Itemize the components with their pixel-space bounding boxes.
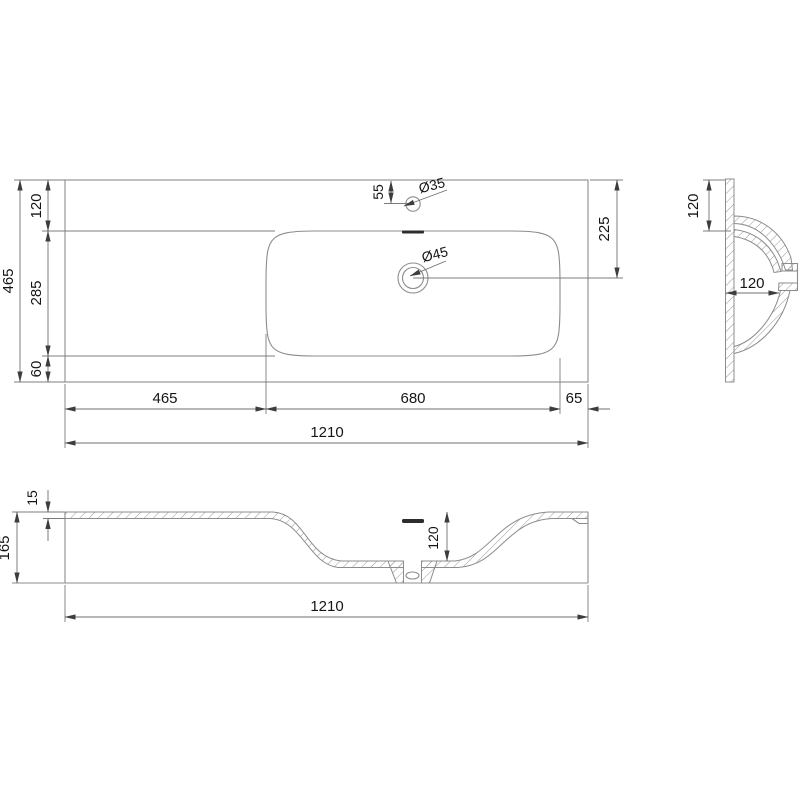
dim-basin-width: 680 [400, 390, 425, 407]
dim-basin-depth: 285 [28, 280, 45, 305]
overflow-slot-top-view [402, 231, 424, 234]
dim-front-overall-height: 165 [0, 535, 13, 560]
dim-side-back-margin: 120 [685, 193, 702, 218]
dim-overall-width-front: 1210 [310, 598, 343, 615]
top-view-dimension-lines [20, 180, 617, 443]
side-bowl-lower-wall [734, 291, 790, 354]
label-drain-hole-dia: Ø45 [420, 243, 450, 265]
side-overflow-tab-bottom [779, 283, 798, 291]
dim-side-bowl-inner-width: 120 [739, 275, 764, 292]
dim-front-margin: 60 [28, 361, 45, 378]
top-view: 465 120 285 60 55 225 Ø35 Ø45 465 680 65… [0, 174, 623, 448]
dim-right-margin: 65 [566, 390, 583, 407]
drain-boss-left [388, 561, 404, 583]
dim-drain-from-back: 225 [596, 216, 613, 241]
drawing-canvas: 465 120 285 60 55 225 Ø35 Ø45 465 680 65… [0, 0, 800, 800]
overflow-slot-front-view [402, 519, 424, 523]
countertop-outline [65, 180, 588, 382]
dim-left-counter-width: 465 [152, 390, 177, 407]
front-right-lip [572, 519, 588, 524]
dim-overall-width-top: 1210 [310, 424, 343, 441]
drain-boss-right [422, 561, 438, 583]
faucet-hole [406, 197, 420, 211]
side-back-wall [726, 179, 735, 382]
dim-faucet-offset: 55 [370, 184, 386, 200]
dim-back-margin: 120 [28, 193, 45, 218]
top-view-extension-lines [14, 180, 623, 448]
label-faucet-hole-dia: Ø35 [417, 174, 447, 196]
dim-overall-depth: 465 [0, 268, 17, 293]
dim-front-bowl-depth: 120 [425, 526, 441, 550]
side-overflow-tab-top [782, 264, 798, 272]
front-deck-bowl-band [65, 512, 588, 568]
front-section-view: 15 165 120 1210 [0, 490, 588, 622]
side-section-view: 120 120 [685, 179, 798, 382]
front-view-dimension-lines [17, 490, 588, 617]
dim-deck-thickness: 15 [24, 490, 40, 506]
washbasin-technical-drawing: 465 120 285 60 55 225 Ø35 Ø45 465 680 65… [0, 0, 800, 800]
